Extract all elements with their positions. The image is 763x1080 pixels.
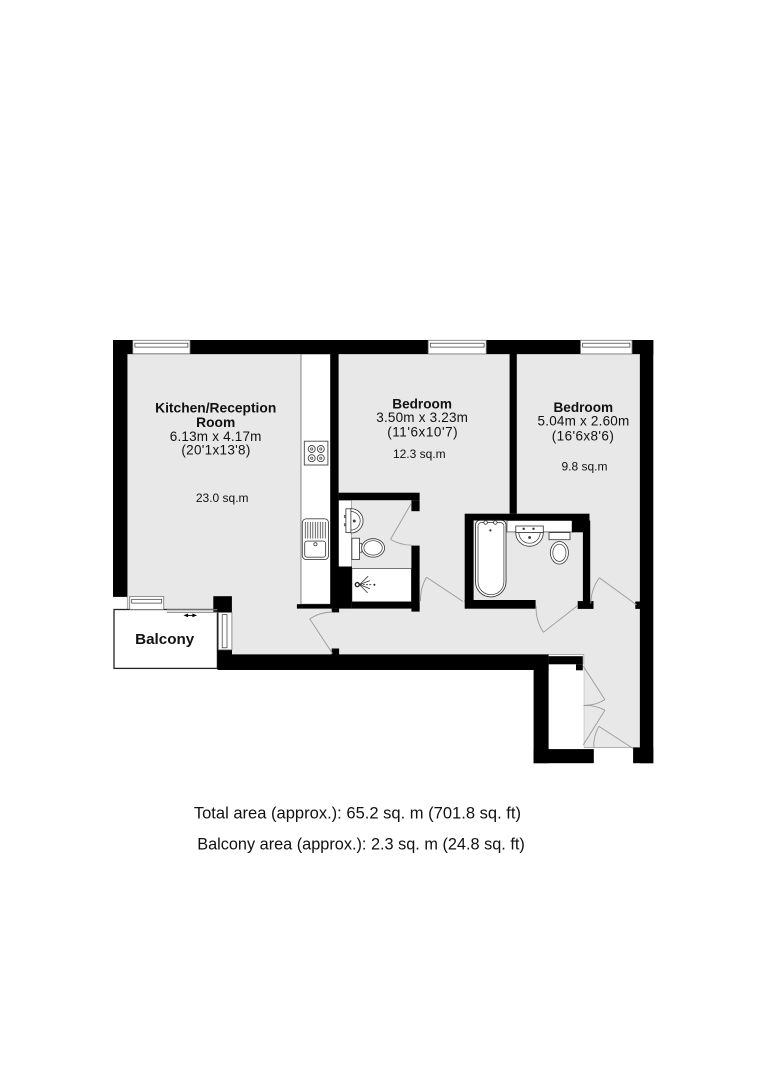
- svg-text:3.50m x 3.23m: 3.50m x 3.23m: [376, 410, 468, 425]
- svg-text:5.04m x 2.60m: 5.04m x 2.60m: [538, 414, 630, 429]
- svg-text:12.3 sq.m: 12.3 sq.m: [393, 447, 446, 461]
- svg-text:23.0 sq.m: 23.0 sq.m: [196, 491, 249, 505]
- svg-text:Room: Room: [196, 415, 235, 430]
- svg-text:(11'6x10'7): (11'6x10'7): [387, 424, 458, 439]
- svg-text:Balcony: Balcony: [135, 631, 195, 648]
- svg-text:(20'1x13'8): (20'1x13'8): [181, 443, 250, 458]
- svg-text:(16'6x8'6): (16'6x8'6): [552, 428, 614, 443]
- svg-text:Kitchen/Reception: Kitchen/Reception: [155, 400, 276, 415]
- svg-text:Total area (approx.): 65.2 sq.: Total area (approx.): 65.2 sq. m (701.8 …: [194, 803, 521, 822]
- svg-text:Balcony area (approx.): 2.3 sq: Balcony area (approx.): 2.3 sq. m (24.8 …: [197, 836, 525, 854]
- svg-text:9.8 sq.m: 9.8 sq.m: [561, 460, 607, 474]
